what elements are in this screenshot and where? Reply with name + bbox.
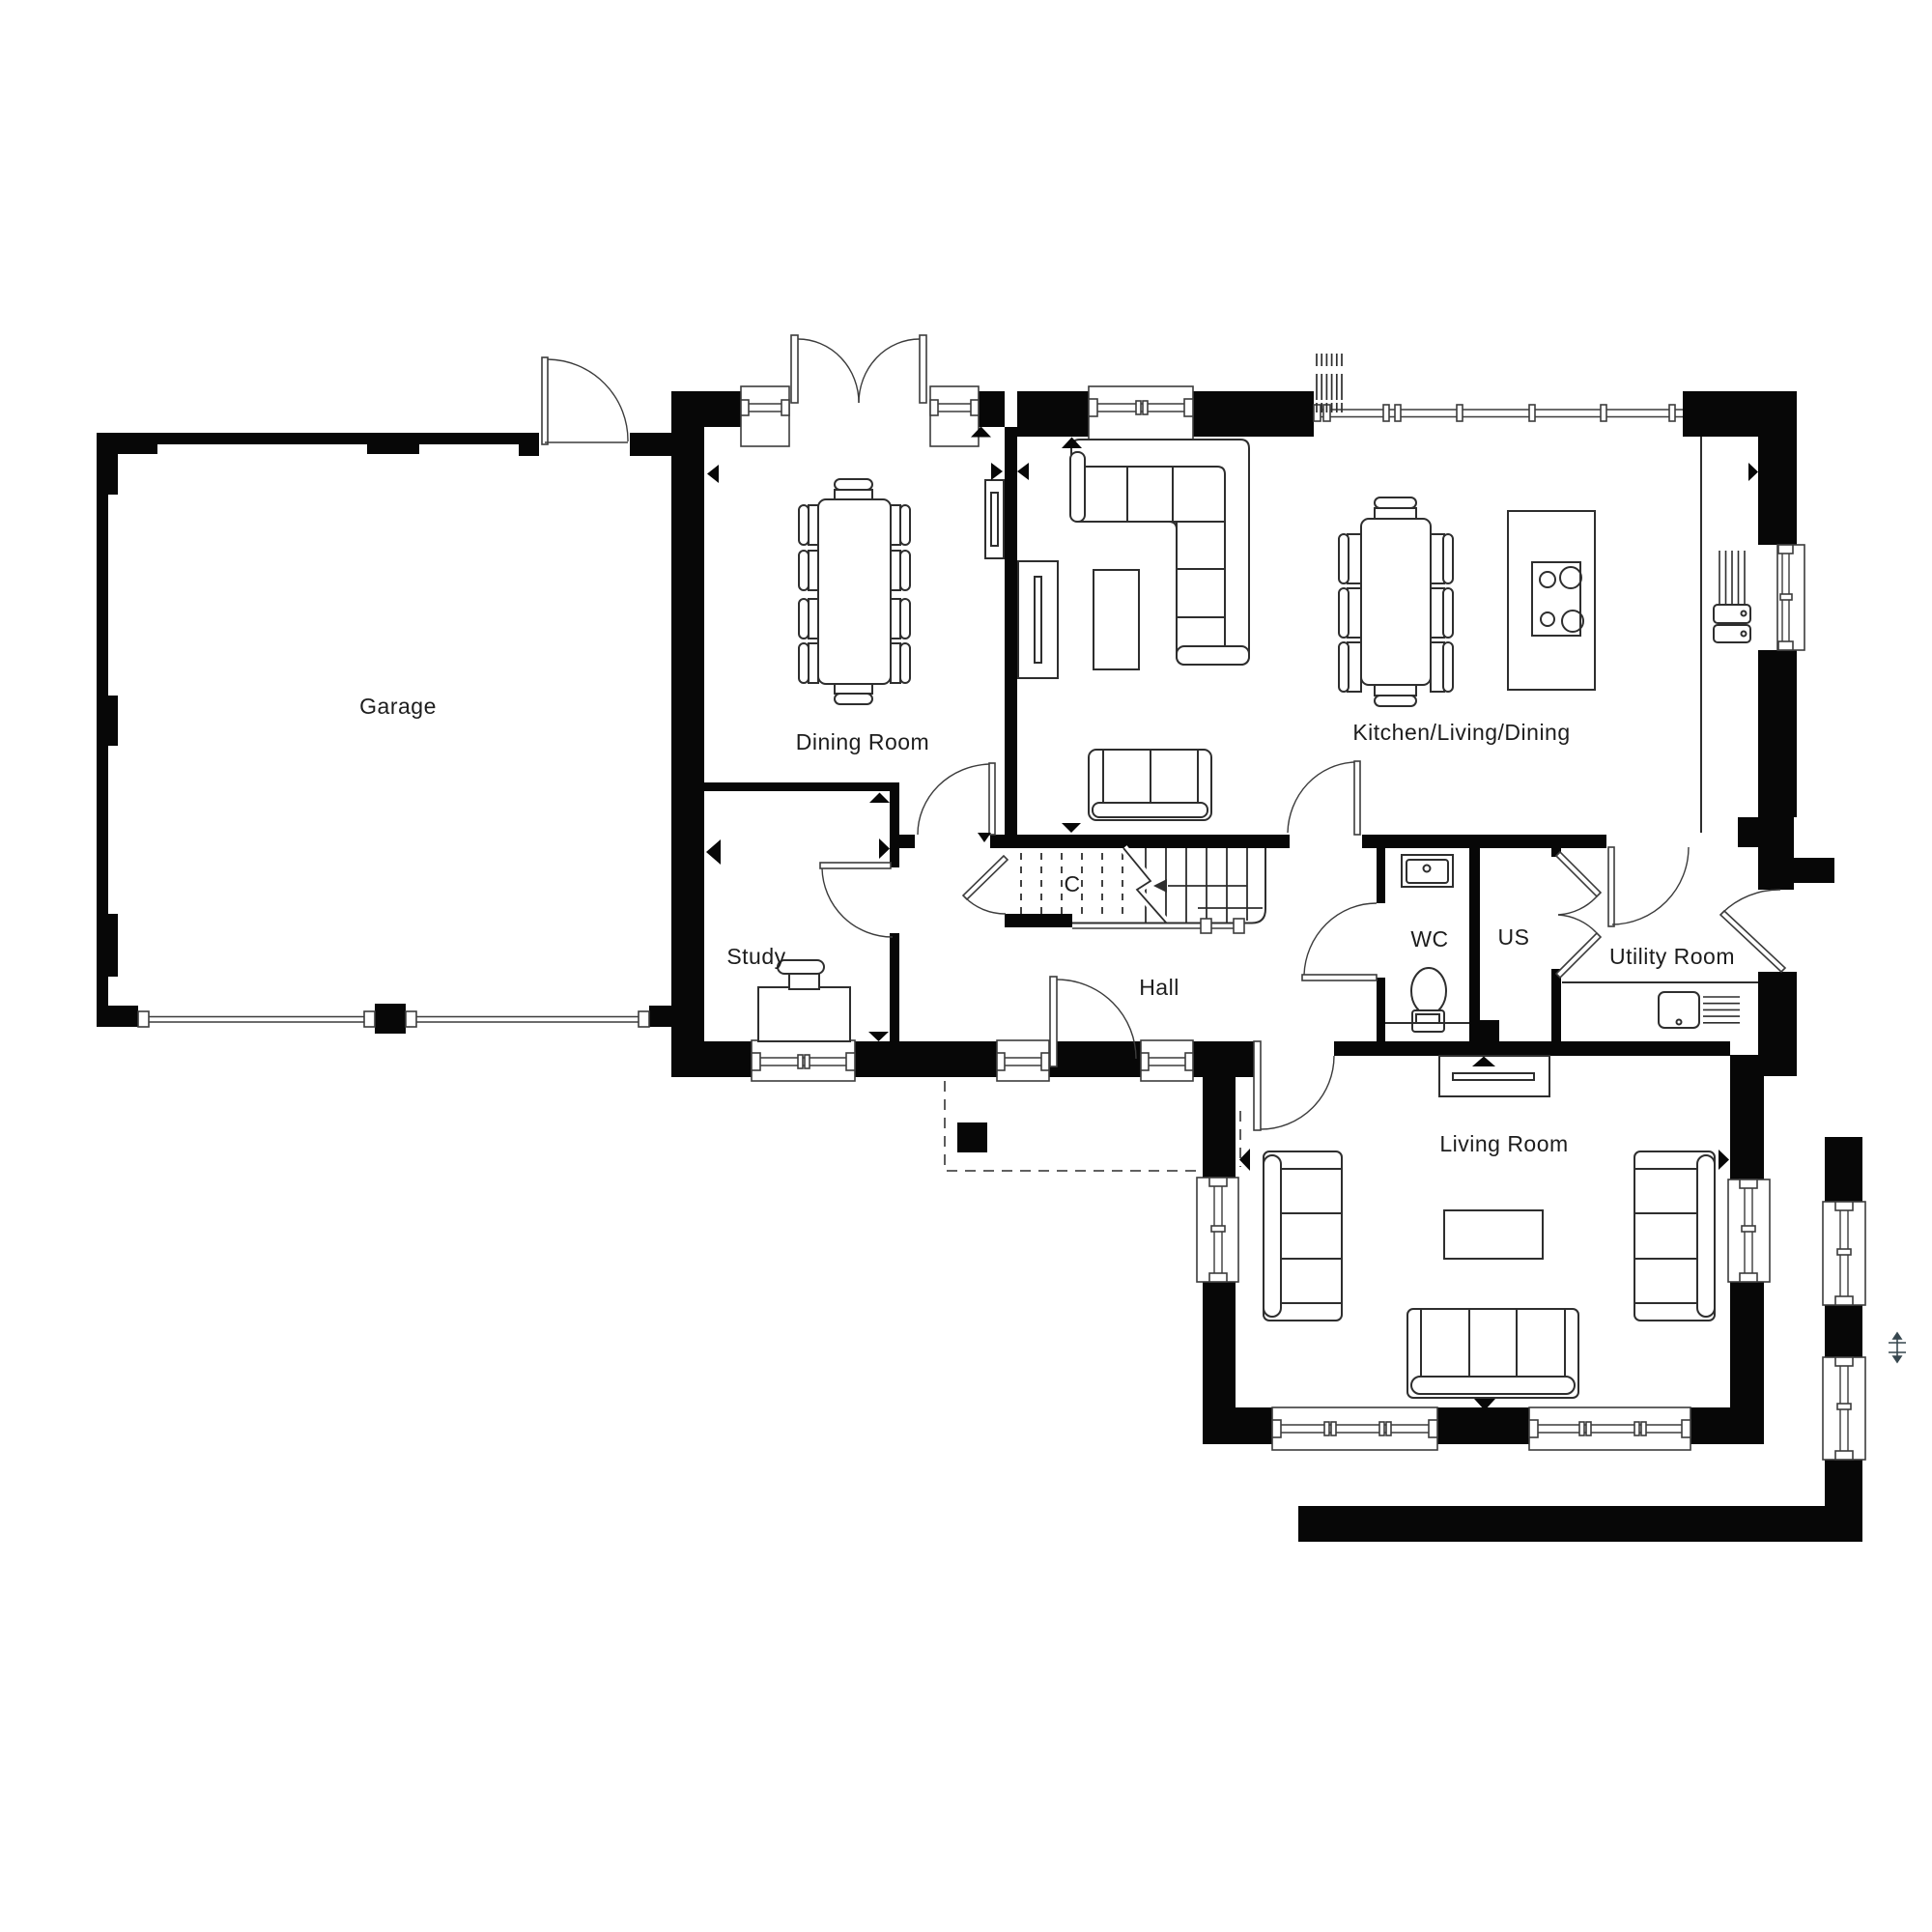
- svg-text:Dining Room: Dining Room: [796, 729, 929, 754]
- svg-text:Hall: Hall: [1139, 975, 1179, 1000]
- svg-text:C: C: [1064, 871, 1080, 896]
- svg-text:Study: Study: [726, 944, 785, 969]
- svg-text:Living Room: Living Room: [1439, 1131, 1568, 1156]
- svg-text:Garage: Garage: [359, 694, 437, 719]
- svg-text:WC: WC: [1410, 926, 1448, 952]
- svg-text:Kitchen/Living/Dining: Kitchen/Living/Dining: [1352, 720, 1570, 745]
- svg-text:Utility Room: Utility Room: [1609, 944, 1735, 969]
- svg-text:US: US: [1498, 924, 1530, 950]
